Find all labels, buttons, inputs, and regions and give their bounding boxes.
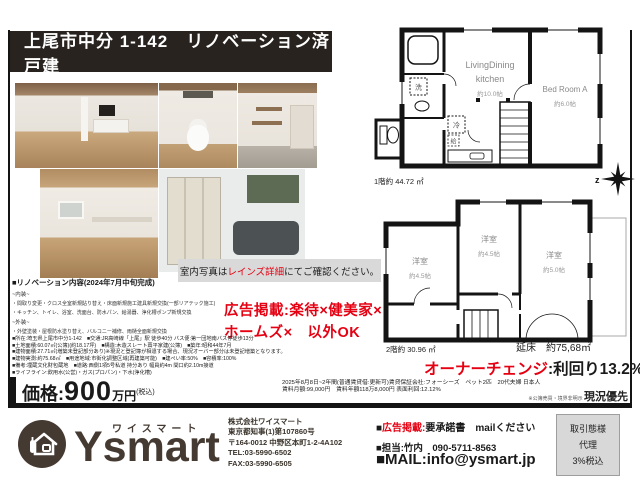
owner-change-yield: :利回り13.2% xyxy=(548,361,640,378)
room-label-west1: 洋室 xyxy=(412,256,428,266)
detail-line: ■備考:埋蔵文化財包蔵地 ■道路:西側1項5号私道 持分あり 幅員約4m 間口約… xyxy=(12,363,332,370)
kitchen-sink xyxy=(470,153,484,159)
pillar-dot xyxy=(476,98,480,102)
price-amount: 900 xyxy=(64,376,112,406)
frame-left-line xyxy=(8,30,10,404)
company-info: 株式会社ワイスマート 東京都知事(1)第107860号 〒164-0012 中野… xyxy=(228,417,342,469)
brand-wordmark: Ysmart xyxy=(74,426,220,469)
deal-type-box: 取引態様 代理 3%税込 xyxy=(556,414,620,476)
photo-bath-window xyxy=(247,175,299,203)
deal-line: 代理 xyxy=(579,437,597,453)
photo-attic-room xyxy=(40,169,158,278)
room-size-west1: 約4.5帖 xyxy=(409,271,432,280)
pillar-dot xyxy=(506,98,510,102)
room-label-west3: 洋室 xyxy=(546,250,562,260)
floorplan-1f-caption: 1階約 44.72 ㎡ xyxy=(374,176,424,187)
disclaimer: ※公簿売買・境界非明示 現況優先 xyxy=(455,387,628,405)
price-bullet-bar xyxy=(10,377,16,404)
company-line: 東京都知事(1)第107860号 xyxy=(228,427,342,437)
bathtub-icon xyxy=(408,36,438,64)
renovation-item: ・間取り変更・クロス全室新規貼り替え・床面新規施工建具新規交換(一部リアテック施… xyxy=(12,300,224,307)
photo-toilet-window xyxy=(183,91,213,98)
room-label-ldk-1: LivingDining xyxy=(465,60,514,70)
photo-toilet-bowl xyxy=(187,125,209,151)
owner-change-label: オーナーチェンジ xyxy=(424,361,548,378)
deal-line: 3%税込 xyxy=(572,453,603,469)
company-line: 〒164-0012 中野区本町1-2-4A102 xyxy=(228,438,342,448)
company-line: FAX:03-5990-6505 xyxy=(228,459,342,469)
disclaimer-small: ※公簿売買・境界非明示 xyxy=(528,396,584,402)
renovation-heading: ■リノベーション内容(2024年7月中旬完成) xyxy=(12,277,224,288)
footer-ad-rest: 要承諾書 mailください xyxy=(425,423,535,434)
photo-hallway xyxy=(238,83,317,168)
room-size-bedroom: 約6.0帖 xyxy=(554,99,577,108)
room-size-ldk: 約10.0帖 xyxy=(477,89,503,98)
owner-change-line: オーナーチェンジ:利回り13.2% xyxy=(424,357,640,379)
floorplan-2f-caption: 2階約 30.96 ㎡ xyxy=(386,344,436,355)
photo-tv xyxy=(99,105,115,116)
footer-ad-label: 広告掲載: xyxy=(382,423,425,434)
price-unit: 万円 xyxy=(112,389,136,403)
price-label: 価格: xyxy=(22,384,64,404)
compass-icon: z xyxy=(592,158,636,200)
renovation-exterior-label: ~外装~ xyxy=(12,318,224,326)
photo-shelf xyxy=(252,121,282,125)
photo-shelf xyxy=(256,107,282,111)
photo-bathroom xyxy=(159,169,305,272)
footer-ad-line: ■広告掲載:要承諾書 mailください xyxy=(376,419,535,434)
total-floor-area: 延床 約75,68㎡ xyxy=(516,339,591,354)
photo-attic-shelf xyxy=(92,217,152,222)
flyer-page: 上尾市中分 1-142 リノベーション済戸建 室内写真はレインズ詳細にてご確認く… xyxy=(0,0,640,498)
photo-living-room xyxy=(15,83,158,168)
toilet-tank-icon xyxy=(380,126,387,144)
company-line: TEL:03-5990-6502 xyxy=(228,448,342,458)
closet-door-arc xyxy=(526,314,552,340)
room-label-west2: 洋室 xyxy=(481,234,497,244)
tag-heater: 給 xyxy=(450,138,456,146)
toilet-icon xyxy=(388,127,399,143)
room-size-west3: 約5.0帖 xyxy=(543,265,566,274)
room-label-bedroom: Bed Room A xyxy=(543,85,589,94)
closet-door-arc xyxy=(552,314,578,340)
renovation-interior-label: ~内装~ xyxy=(12,290,224,298)
property-details: ■所在:埼玉県上尾市中分1-142 ■交通:JR高崎線「上尾」駅 徒歩40分 バ… xyxy=(12,336,332,376)
photo-pillar xyxy=(81,97,88,141)
price-tax-note: (税込) xyxy=(136,389,155,396)
photo-kitchen-counter xyxy=(93,119,129,133)
photo-toilet xyxy=(159,83,237,168)
photo-door xyxy=(290,105,314,149)
photo-bathtub xyxy=(233,221,299,255)
stairs-2f xyxy=(464,310,498,340)
detail-line: ■建物実測:約75.68㎡ ■用途地域:市街化調整区域(再建築可能) ■建ぺい率… xyxy=(12,356,332,363)
tag-washer: 洗 xyxy=(415,83,422,92)
windows-2f xyxy=(383,199,593,300)
tag-fridge: 冷 xyxy=(453,121,460,130)
photo-note-prefix: 室内写真は xyxy=(180,264,228,278)
company-logo xyxy=(18,420,66,468)
page-title: 上尾市中分 1-142 リノベーション済戸建 xyxy=(10,31,332,72)
frame-right-line xyxy=(630,30,632,404)
page-title-text: 上尾市中分 1-142 リノベーション済戸建 xyxy=(24,27,332,77)
floorplan-1f: LivingDining kitchen 約10.0帖 Bed Room A 約… xyxy=(372,26,607,176)
compass-letter: z xyxy=(595,175,600,185)
floorplan-2f: 洋室 約4.5帖 洋室 約4.5帖 洋室 約5.0帖 xyxy=(380,198,630,344)
deal-line: 取引態様 xyxy=(570,421,606,437)
washbasin-icon xyxy=(415,101,429,111)
disclaimer-big: 現況優先 xyxy=(584,391,628,403)
renovation-block: ■リノベーション内容(2024年7月中旬完成) ~内装~ ・間取り変更・クロス全… xyxy=(12,277,224,335)
footer-mail-line: ■MAIL:info@ysmart.jp xyxy=(376,451,536,468)
company-line: 株式会社ワイスマート xyxy=(228,417,342,427)
roof-outline xyxy=(592,218,626,336)
photo-bath-doors xyxy=(167,177,221,265)
room-label-ldk-2: kitchen xyxy=(476,74,505,84)
photo-attic-window xyxy=(58,201,84,219)
house-icon xyxy=(18,420,66,468)
renovation-item: ・キッチン、トイレ、浴室、洗面台、防水パン、給湯器、浄化槽ポンプ新規交換 xyxy=(12,309,224,316)
renovation-item: ・外壁塗装・屋根防水塗り替え、バルコニー補修、雨樋全面新規交換 xyxy=(12,328,224,335)
photo-note-highlight: レインズ詳細 xyxy=(227,264,284,278)
room-size-west2: 約4.5帖 xyxy=(478,249,501,258)
photo-note-suffix: にてご確認ください。 xyxy=(284,264,379,278)
lease-line: 2025年8月8日~2年間(普通賃貸借:更新可)賃貸保証会社:フォーシーズ ペッ… xyxy=(282,380,582,387)
ad-notice-line1: 広告掲載:楽待×健美家× xyxy=(224,299,382,320)
detail-line: ■所在:埼玉県上尾市中分1-142 ■交通:JR高崎線「上尾」駅 徒歩40分 バ… xyxy=(12,336,332,343)
price-row: 価格:900万円(税込) xyxy=(22,376,155,407)
